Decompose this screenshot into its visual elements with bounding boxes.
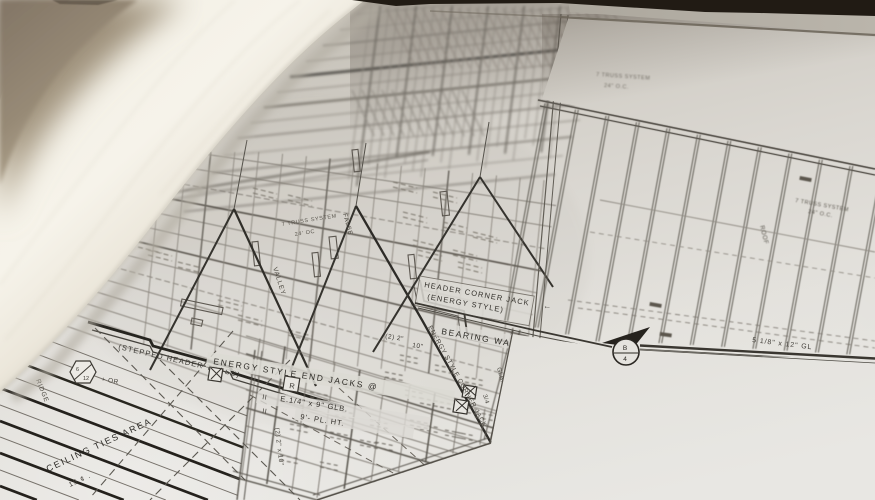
svg-text:4: 4 <box>623 356 627 363</box>
svg-text:12: 12 <box>83 376 89 382</box>
svg-text:B: B <box>623 345 627 352</box>
svg-text:←: ← <box>543 301 552 311</box>
svg-text:6: 6 <box>76 367 79 373</box>
